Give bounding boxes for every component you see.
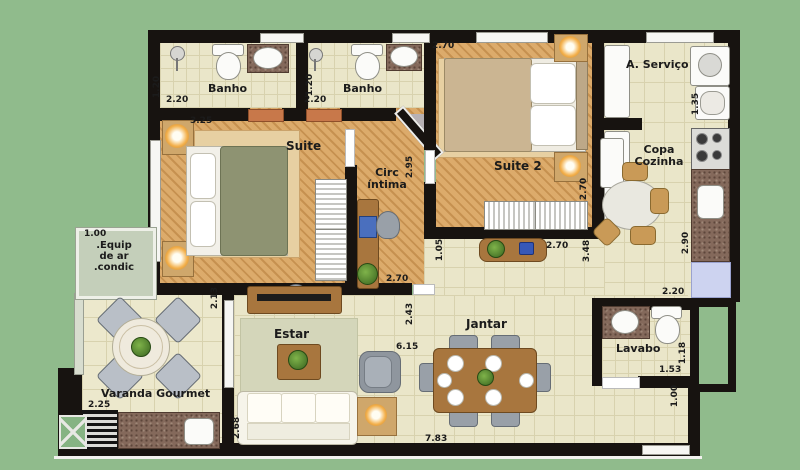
wall-right-lower <box>688 388 700 448</box>
label-equip-line3: .condic <box>84 262 144 273</box>
blanket-suite-1 <box>220 146 288 256</box>
wall-lavabo-left <box>592 298 602 386</box>
dim-banho1-height: 1.20 <box>152 76 162 98</box>
burner-3 <box>696 150 708 162</box>
sink-lavabo <box>611 310 639 334</box>
shower-hose-banho-1 <box>176 58 178 71</box>
lamp-suite2-bottom <box>559 155 581 177</box>
washer-door <box>698 53 722 77</box>
dim-banho1-width: 2.20 <box>166 95 188 105</box>
window-servico <box>646 32 714 43</box>
door-gap-suite-2 <box>425 150 435 184</box>
planter-varanda <box>59 415 87 449</box>
dim-banho2-width: 2.20 <box>304 95 326 105</box>
dim-banho2-height: 1.20 <box>305 74 315 96</box>
dim-suite2-width: 2.70 <box>432 41 454 51</box>
lamp-suite1-top <box>165 124 189 148</box>
plant-coffee-table <box>288 350 308 370</box>
desk-chair-circ <box>376 211 400 239</box>
floor-plan: Banho Banho Suite Circ íntima Suite 2 A.… <box>0 0 800 470</box>
burner-1 <box>696 133 708 145</box>
shower-icon-banho-2 <box>309 48 323 62</box>
toilet-bowl-banho-1 <box>216 52 241 80</box>
label-servico: A. Serviço <box>626 58 689 71</box>
dim-hall-width: 2.70 <box>546 241 568 251</box>
dim-lavabo-height: 1.18 <box>678 342 688 364</box>
label-banho-1: Banho <box>208 82 247 95</box>
dim-copa-width: 2.20 <box>662 287 684 297</box>
dim-copa-height: 2.90 <box>681 232 691 254</box>
dim-suite-width: 3.25 <box>190 116 212 126</box>
burner-4 <box>712 150 722 160</box>
cabinet-servico <box>604 45 630 118</box>
label-lavabo: Lavabo <box>616 342 660 355</box>
sink-banho-1 <box>253 47 283 69</box>
chair-copa-2 <box>650 188 669 214</box>
window-banho-1 <box>260 33 304 43</box>
label-suite: Suite <box>286 139 321 153</box>
door-banho-1 <box>248 109 284 122</box>
plate-3 <box>447 389 464 406</box>
plate-5 <box>437 373 452 388</box>
shower-hose-banho-2 <box>314 59 316 71</box>
label-estar: Estar <box>274 327 309 341</box>
sink-banho-2 <box>390 46 418 67</box>
wardrobe-suite2-b <box>535 201 588 230</box>
dim-circ-width: 2.70 <box>386 274 408 284</box>
dim-lavabo-width: 1.53 <box>659 365 681 375</box>
window-entry-door <box>642 445 690 455</box>
plant-circ <box>357 263 378 285</box>
wardrobe-suite1-a <box>315 179 347 230</box>
window-varanda-door <box>224 300 234 388</box>
dim-hall-height-2: 3.48 <box>582 240 592 262</box>
plan-outer-edge <box>54 456 702 459</box>
dim-suite2-height: 2.70 <box>579 178 589 200</box>
door-gap-lavabo <box>602 377 640 389</box>
dim-varanda-width: 2.25 <box>88 400 110 410</box>
plate-1 <box>447 355 464 372</box>
wall-banho2-bottom <box>340 108 396 121</box>
window-suite-2 <box>476 32 548 43</box>
wardrobe-suite1-b <box>315 229 347 281</box>
lamp-suite2-top <box>559 36 581 58</box>
door-gap-circ-estar <box>413 284 435 295</box>
dim-servico-height: 1.35 <box>691 93 701 115</box>
dim-jantar-height: 2.43 <box>405 303 415 325</box>
dim-jantar-width: 6.15 <box>396 342 418 352</box>
label-equip-line1: .Equip <box>84 240 144 251</box>
pillow-suite1-a <box>190 153 216 199</box>
sofa-cushion-3 <box>315 393 350 423</box>
sink-varanda <box>184 418 214 445</box>
dim-hall-height-1: 1.05 <box>435 239 445 261</box>
laundry-tank-basin <box>700 91 725 115</box>
grill-varanda <box>82 410 118 449</box>
toilet-bowl-banho-2 <box>355 52 380 80</box>
plate-6 <box>519 373 534 388</box>
label-equip-ar: .Equip de ar .condic <box>84 240 144 273</box>
pillow-suite1-b <box>190 201 216 247</box>
plate-4 <box>485 389 502 406</box>
pillow-suite2-b <box>530 105 576 146</box>
pillow-suite2-a <box>530 63 576 104</box>
label-equip-line2: de ar <box>84 251 144 262</box>
wall-kitchen-stub <box>600 118 642 130</box>
chair-copa-3 <box>630 226 656 245</box>
door-gap-suite-1 <box>345 129 355 167</box>
wardrobe-suite2-a <box>484 201 536 230</box>
side-counter-copa <box>600 138 624 188</box>
lamp-estar <box>365 404 387 426</box>
wall-varanda-left-glass <box>74 293 84 375</box>
label-suite-2: Suite 2 <box>494 159 542 173</box>
headboard-suite-2 <box>576 60 588 150</box>
burner-2 <box>712 133 722 143</box>
cabinet-blue-copa <box>691 262 731 298</box>
shaft-opening <box>699 307 728 384</box>
dim-circ-height: 2.95 <box>405 156 415 178</box>
label-copa-line2: Cozinha <box>628 156 690 168</box>
dim-varanda-height: 2.13 <box>210 287 220 309</box>
monitor-circ <box>359 216 377 238</box>
label-copa-cozinha: Copa Cozinha <box>628 144 690 168</box>
sink-copa <box>697 185 724 219</box>
centerpiece-jantar <box>477 369 494 386</box>
bag-hall-console <box>519 242 534 255</box>
label-jantar: Jantar <box>466 317 507 331</box>
armchair-cushion <box>364 356 392 388</box>
plant-hall-console <box>487 240 505 258</box>
dim-estar-height: 2.68 <box>232 417 242 439</box>
label-varanda: Varanda Gourmet <box>101 387 210 400</box>
wall-lavabo-bottom-stub <box>638 376 694 388</box>
label-banho-2: Banho <box>343 82 382 95</box>
sofa-cushion-2 <box>281 393 316 423</box>
door-banho-2 <box>306 109 342 122</box>
sofa-seat-front <box>247 423 350 440</box>
dim-equip-width: 1.00 <box>84 229 106 239</box>
sofa-cushion-1 <box>247 393 282 423</box>
plant-table-varanda <box>131 337 151 357</box>
label-circ-line2: íntima <box>357 179 417 191</box>
tv-estar <box>257 294 331 301</box>
dim-total-width: 7.83 <box>425 434 447 444</box>
blanket-suite-2 <box>444 58 532 152</box>
dim-entry-height: 1.00 <box>670 385 680 407</box>
window-banho-2 <box>392 33 430 43</box>
toilet-bowl-lavabo <box>655 315 680 344</box>
